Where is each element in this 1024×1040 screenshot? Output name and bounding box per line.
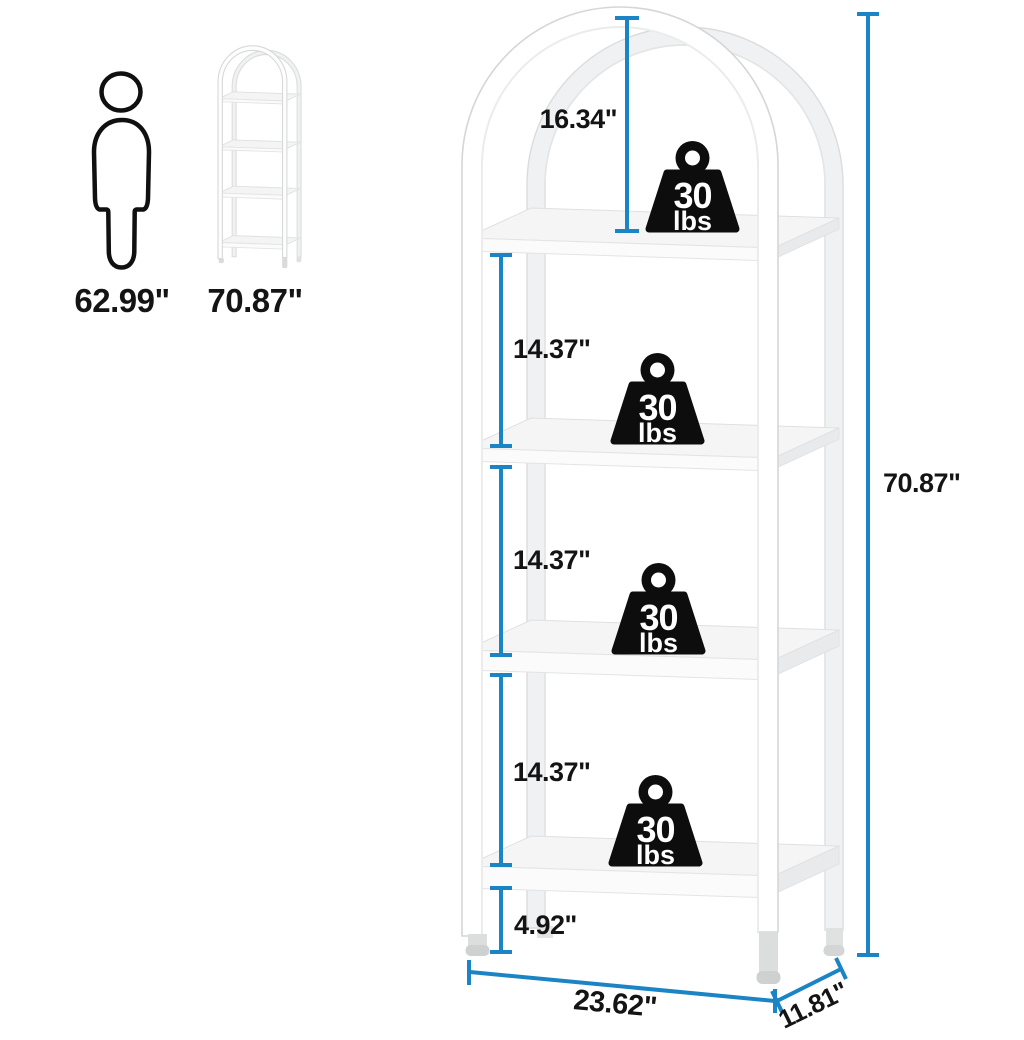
section-3-dimension-label: 14.37" — [513, 547, 590, 574]
section-4-dimension-label: 14.37" — [513, 759, 590, 786]
overall-height-dimension-line — [857, 14, 879, 955]
section-3-dimension-line — [490, 467, 512, 655]
weight-badge-shelf-3: 30 lbs — [608, 561, 708, 657]
weight-icon: 30 lbs — [608, 561, 708, 657]
product-thumbnail-height-label: 70.87" — [190, 284, 320, 317]
section-2-dimension-label: 14.37" — [513, 336, 590, 363]
weight-icon: 30 lbs — [607, 351, 707, 447]
person-height-label: 62.99" — [57, 284, 187, 317]
weight-badge-shelf-2: 30 lbs — [607, 351, 707, 447]
bookshelf-diagram-art — [0, 0, 1024, 1024]
product-dimension-diagram: 62.99" 70.87" 16.34" 14.37" 14.37" 14.37… — [0, 0, 1024, 1024]
weight-badge-shelf-1: 30 lbs — [642, 139, 742, 235]
bottom-clearance-dimension-label: 4.92" — [514, 912, 577, 939]
weight-unit: lbs — [673, 206, 712, 235]
product-thumbnail-icon — [218, 46, 301, 268]
weight-icon: 30 lbs — [605, 773, 705, 869]
weight-icon: 30 lbs — [642, 139, 742, 235]
weight-unit: lbs — [639, 628, 678, 657]
weight-unit: lbs — [636, 840, 675, 869]
bottom-clearance-dimension-line — [490, 888, 512, 952]
weight-unit: lbs — [638, 418, 677, 447]
section-2-dimension-line — [490, 255, 512, 446]
weight-badge-shelf-4: 30 lbs — [605, 773, 705, 869]
section-4-dimension-line — [490, 675, 512, 865]
top-section-dimension-label: 16.34" — [490, 106, 617, 133]
person-icon — [94, 74, 149, 268]
overall-height-dimension-label: 70.87" — [883, 470, 960, 497]
